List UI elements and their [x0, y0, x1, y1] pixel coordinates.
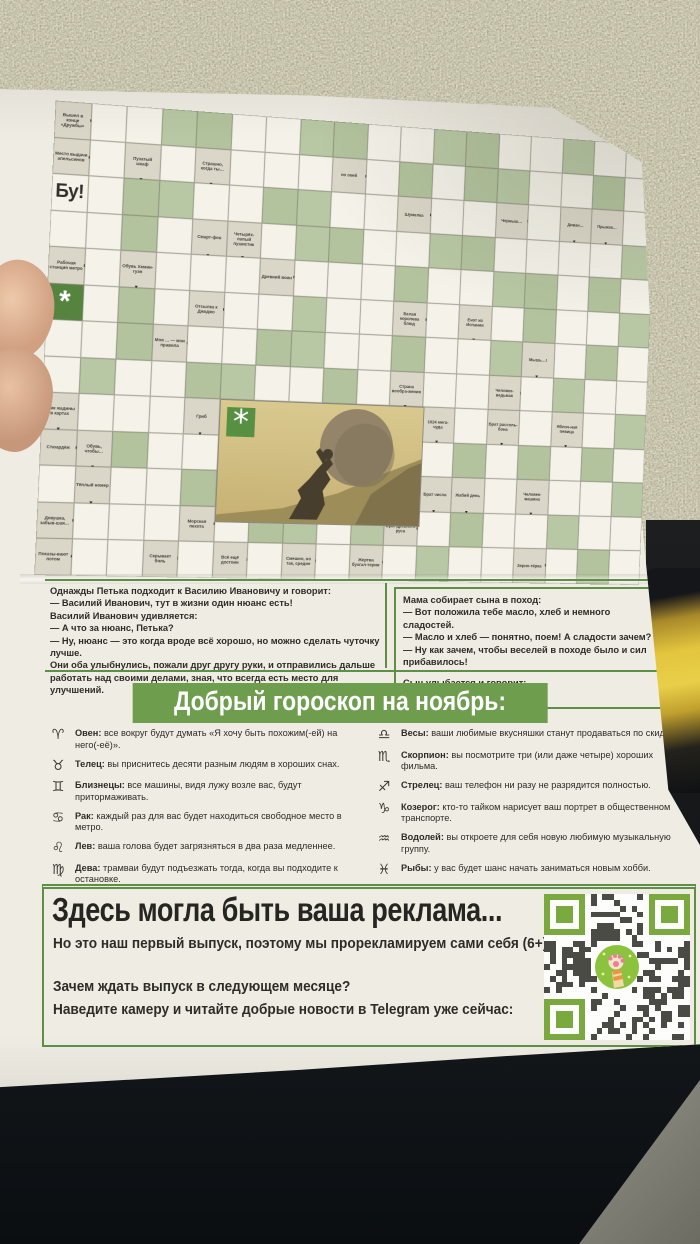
- crossword-cell: [155, 252, 192, 290]
- crossword-cell: [182, 433, 218, 470]
- crossword-cell: [158, 180, 195, 218]
- crossword-cell: [482, 513, 516, 548]
- crossword-clue-cell: Мышь…!▾: [521, 342, 554, 378]
- horoscope-text: Овен: все вокруг будут думать «Я хочу бы…: [75, 728, 356, 751]
- crossword-cell: [465, 131, 499, 168]
- crossword-clue-cell: Смарт-фон▾: [191, 218, 227, 256]
- zodiac-icon: ♊: [48, 780, 68, 794]
- crossword-cell: [428, 233, 462, 270]
- crossword-cell: [265, 116, 301, 154]
- crossword-cell: [562, 139, 595, 175]
- crossword-cell: [529, 170, 562, 206]
- crossword-cell: [79, 357, 116, 395]
- horoscope-text: Скорпион: вы посмотрите три (или даже че…: [401, 750, 682, 773]
- crossword-cell: [224, 256, 260, 293]
- joke-line: Мама собирает сына в поход:: [403, 594, 655, 606]
- crossword-cell: [546, 515, 579, 550]
- crossword-cell: [514, 514, 547, 549]
- horoscope-entry: ♓Рыбы: у вас будет шанс начать заниматьс…: [374, 863, 682, 877]
- crossword-clue-cell: Яблоч-ная певица▾: [550, 412, 583, 447]
- zodiac-icon: ♓: [374, 863, 394, 877]
- crossword-cell: [558, 241, 591, 277]
- crossword-cell: [530, 136, 563, 172]
- crossword-cell: [126, 106, 163, 145]
- crossword-cell: [430, 198, 464, 235]
- crossword-cell: [257, 294, 293, 331]
- crossword-cell: [431, 164, 465, 201]
- crossword-clue-cell: Отсылка к Джоджо▸: [188, 290, 224, 327]
- crossword-cell: [419, 442, 453, 478]
- horoscope-text: Рак: каждый раз для вас будет находиться…: [75, 811, 356, 834]
- cat-paw-icon: [594, 944, 640, 990]
- horoscope-entry: ♋Рак: каждый раз для вас будет находитьс…: [48, 811, 356, 834]
- crossword-cell: [88, 139, 125, 178]
- crossword-cell: [609, 516, 642, 551]
- horoscope-entry: ♎Весы: ваши любимые вкусняшки станут про…: [374, 728, 682, 742]
- crossword-cell: [523, 308, 556, 344]
- horoscope-entry: ♍Дева: трамваи будут подъезжать тогда, к…: [48, 863, 356, 886]
- crossword-cell: [87, 176, 124, 214]
- crossword-cell: [433, 129, 467, 166]
- crossword-cell: [555, 309, 588, 345]
- crossword-clue-cell: Морская пехота▸: [178, 505, 214, 542]
- crossword-cell: [395, 231, 429, 268]
- crossword-clue-cell: Страшно, когда ты…▾: [194, 147, 230, 185]
- ad-line-2: Зачем ждать выпуск в следующем месяце?: [53, 979, 350, 995]
- crossword-clue-cell: Скрывает боль▸: [142, 540, 179, 577]
- crossword-clue-cell: Обувь Хемин-гуэя▾: [119, 250, 156, 288]
- zodiac-icon: ♑: [374, 802, 394, 816]
- zodiac-icon: ♒: [374, 832, 394, 846]
- crossword-clue-cell: Вышел в конце «Дружбы»▸: [54, 101, 92, 140]
- crossword-cell: [618, 313, 651, 348]
- crossword-cell: [356, 369, 391, 405]
- crossword-cell: [616, 346, 649, 381]
- horoscope-entry: ♉Телец: вы приснитесь десяти разным людя…: [48, 759, 356, 773]
- horoscope-text: Близнецы: все машины, видя лужу возле ва…: [75, 780, 356, 803]
- zodiac-icon: ♏: [374, 750, 394, 764]
- crossword-cell: [526, 239, 559, 275]
- zodiac-icon: ♉: [48, 759, 68, 773]
- crossword-cell: [229, 149, 265, 187]
- crossword-cell: [424, 337, 458, 373]
- crossword-cell: [260, 223, 296, 260]
- crossword-grid: Вышел в конце «Дружбы»▸Место выдачи апел…: [34, 101, 657, 585]
- crossword-cell: [295, 225, 330, 262]
- zodiac-icon: ♐: [374, 780, 394, 794]
- crossword-clue-cell: Жабий день▾: [451, 477, 485, 513]
- crossword-clue-cell: Человек-ведьмак▸: [488, 375, 522, 411]
- crossword-cell: [496, 168, 530, 205]
- crossword-cell: [517, 445, 550, 480]
- crossword-cell: [367, 124, 402, 161]
- crossword-cell: [364, 194, 399, 231]
- crossword-cell: [491, 306, 525, 342]
- crossword-cell: [524, 273, 557, 309]
- crossword-cell: [153, 288, 190, 326]
- horoscope-entry: ♈Овен: все вокруг будут думать «Я хочу б…: [48, 728, 356, 751]
- ad-line-3: Наведите камеру и читайте добрые новости…: [53, 1002, 513, 1018]
- asterisk-icon: *: [232, 402, 250, 441]
- crossword-cell: [452, 443, 486, 479]
- crossword-clue-cell: Место выдачи апельсинов▸: [52, 137, 90, 176]
- bu-cell: Бу!: [51, 173, 89, 212]
- crossword-cell: [186, 326, 222, 363]
- crossword-cell: [357, 334, 392, 371]
- crossword-clue-cell: Страна вообра-жения▾: [389, 371, 424, 407]
- crossword-cell: [449, 512, 483, 547]
- horoscope-text: Телец: вы приснитесь десяти разным людям…: [75, 759, 339, 771]
- crossword-cell: [254, 365, 290, 402]
- crossword-cell: [362, 229, 397, 266]
- crossword-cell: [180, 469, 216, 506]
- crossword-cell: [256, 329, 292, 366]
- crossword-clue-cell: но окей▸: [331, 157, 366, 194]
- crossword-cell: [290, 331, 325, 368]
- crossword-section: Вышел в конце «Дружбы»▸Место выдачи апел…: [34, 101, 657, 585]
- crossword-cell: [592, 175, 625, 211]
- crossword-cell: [122, 178, 159, 216]
- crossword-cell: [359, 299, 394, 336]
- crossword-clue-cell: Древний воин▸: [259, 258, 295, 295]
- crossword-cell: [360, 264, 395, 301]
- crossword-cell: [90, 103, 127, 142]
- crossword-cell: [425, 302, 459, 338]
- crossword-cell: [114, 359, 151, 397]
- ad-section: Здесь могла быть ваша реклама... Но это …: [42, 884, 696, 1047]
- crossword-cell: [161, 109, 198, 147]
- crossword-cell: [579, 481, 612, 516]
- crossword-clue-cell: Пузатый шкаф▾: [124, 142, 161, 180]
- crossword-cell: [588, 277, 621, 313]
- crossword-cell: [193, 183, 229, 221]
- crossword-cell: [454, 408, 488, 444]
- crossword-cell: [299, 119, 334, 157]
- crossword-cell: [613, 414, 646, 449]
- crossword-cell: [457, 339, 491, 375]
- crossword-cell: [293, 260, 328, 297]
- horoscope-right-column: ♎Весы: ваши любимые вкусняшки станут про…: [374, 728, 682, 886]
- crossword-cell: [221, 328, 257, 365]
- crossword-cell: [111, 431, 148, 468]
- crossword-cell: [291, 295, 326, 332]
- crossword-cell: [328, 227, 363, 264]
- crossword-cell: [262, 187, 298, 225]
- crossword-cell: [615, 380, 648, 415]
- crossword-cell: [489, 340, 523, 376]
- crossword-cell: [327, 262, 362, 299]
- crossword-cell: [147, 432, 184, 469]
- crossword-cell: [547, 480, 580, 515]
- crossword-cell: [298, 154, 333, 192]
- crossword-cell: [553, 343, 586, 379]
- horoscope-text: Дева: трамваи будут подъезжать тогда, ко…: [75, 863, 356, 886]
- horoscope-text: Стрелец: ваш телефон ни разу не разрядит…: [401, 780, 651, 792]
- crossword-cell: [185, 362, 221, 399]
- qr-module: [684, 1034, 690, 1040]
- crossword-cell: [322, 368, 357, 405]
- crossword-cell: [493, 237, 527, 273]
- crossword-cell: [589, 243, 622, 279]
- joke-line: Однажды Петька подходит к Василию Иванов…: [50, 585, 380, 597]
- crossword-cell: [113, 395, 150, 432]
- joke-line: — Ну, нюанс — это когда вроде всё хорошо…: [50, 635, 380, 660]
- crossword-clue-cell: Девушка, забыв-шая…▸: [36, 501, 74, 538]
- crossword-cell: [391, 336, 426, 372]
- crossword-cell: [223, 292, 259, 329]
- crossword-cell: [578, 515, 611, 550]
- horoscope-entry: ♊Близнецы: все машины, видя лужу возле в…: [48, 780, 356, 803]
- finger-knuckle: [0, 257, 58, 363]
- crossword-cell: [143, 504, 180, 541]
- crossword-cell: [427, 268, 461, 304]
- zodiac-icon: ♍: [48, 863, 68, 877]
- horoscope-text: Козерог: кто-то тайком нарисует ваш порт…: [401, 802, 682, 825]
- crossword-cell: [416, 511, 450, 547]
- horoscope-text: Весы: ваши любимые вкусняшки станут прод…: [401, 728, 677, 740]
- crossword-cell: [109, 467, 146, 504]
- ad-title: Здесь могла быть ваша реклама...: [52, 891, 502, 929]
- crossword-cell: [585, 345, 618, 380]
- horoscope-entry: ♐Стрелец: ваш телефон ни разу не разряди…: [374, 780, 682, 794]
- crossword-cell: [228, 185, 264, 223]
- crossword-cell: [106, 540, 143, 577]
- crossword-cell: [330, 192, 365, 229]
- crossword-clue-cell: Енот из Испании▾: [458, 304, 492, 340]
- joke-line: — Василий Иванович, тут в жизни один нюа…: [50, 597, 380, 609]
- crossword-cell: [85, 212, 122, 250]
- crossword-cell: [455, 373, 489, 409]
- crossword-cell: [333, 121, 368, 158]
- crossword-cell: [611, 482, 644, 517]
- horoscope-left-column: ♈Овен: все вокруг будут думать «Я хочу б…: [48, 728, 356, 886]
- crossword-clue-cell: Гриб▾: [183, 398, 219, 435]
- crossword-cell: [148, 396, 185, 433]
- zodiac-icon: ♎: [374, 728, 394, 742]
- crossword-cell: [581, 447, 614, 482]
- divider-rule: [45, 670, 693, 672]
- crossword-clue-cell: Моя … — мои правила▸: [151, 324, 188, 362]
- horoscope-text: Водолей: вы откроете для себя новую люби…: [401, 832, 682, 855]
- crossword-clue-cell: Четырёх-лапый пушистик▾: [226, 221, 262, 259]
- crossword-cell: [483, 478, 517, 513]
- crossword-cell: [288, 366, 323, 403]
- crossword-clue-cell: 1024 мега-чуда▾: [421, 407, 455, 443]
- crossword-cell: [82, 284, 119, 322]
- crossword-cell: [80, 321, 117, 359]
- sisyphus-image: *: [215, 399, 425, 527]
- joke-line: — Вот положила тебе масло, хлеб и немног…: [403, 606, 655, 631]
- zodiac-icon: ♌: [48, 841, 68, 855]
- joke-line: — Масло и хлеб — понятно, поем! А сладос…: [403, 631, 655, 643]
- crossword-cell: [108, 503, 145, 540]
- crossword-cell: [527, 205, 560, 241]
- horoscope-entry: ♑Козерог: кто-то тайком нарисует ваш пор…: [374, 802, 682, 825]
- crossword-clue-cell: Показы-вают потом▸: [34, 538, 72, 575]
- crossword-cell: [231, 114, 267, 152]
- joke-column-divider: [385, 583, 387, 668]
- crossword-clue-cell: Брат числа▾: [418, 476, 452, 512]
- horoscope-entry: ♌Лев: ваша голова будет загрязняться в д…: [48, 841, 356, 855]
- crossword-cell: [145, 468, 182, 505]
- horoscope-text: Лев: ваша голова будет загрязняться в дв…: [75, 841, 335, 853]
- joke-line: — Ну как зачем, чтобы веселей в походе б…: [403, 644, 655, 669]
- crossword-cell: [398, 161, 432, 198]
- crossword-cell: [422, 372, 456, 408]
- crossword-cell: [552, 378, 585, 413]
- crossword-cell: [220, 363, 256, 400]
- crossword-cell: [492, 271, 526, 307]
- crossword-clue-cell: Обувь, чтобы…▾: [75, 430, 112, 467]
- crossword-clue-cell: Тёплый номер▾: [74, 466, 111, 503]
- finger-tip: [0, 345, 57, 455]
- crossword-clue-cell: Диван…▾: [559, 207, 592, 243]
- horoscope-title: Добрый гороскоп на ноябрь:: [133, 683, 548, 723]
- crossword-cell: [116, 322, 153, 360]
- crossword-cell: [83, 248, 120, 286]
- zodiac-icon: ♋: [48, 811, 68, 825]
- crossword-clue-cell: Белая королева блюд▸: [392, 301, 427, 337]
- divider-rule: [45, 579, 693, 581]
- crossword-cell: [461, 235, 495, 271]
- horoscope-entry: ♏Скорпион: вы посмотрите три (или даже ч…: [374, 750, 682, 773]
- crossword-cell: [460, 270, 494, 306]
- crossword-cell: [583, 379, 616, 414]
- crossword-cell: [560, 173, 593, 209]
- horoscope-title-text: Добрый гороскоп на ноябрь:: [174, 686, 506, 717]
- crossword-cell: [520, 376, 553, 412]
- crossword-cell: [498, 134, 532, 171]
- crossword-cell: [365, 159, 400, 196]
- qr-code: [544, 894, 690, 1040]
- crossword-cell: [72, 502, 109, 539]
- crossword-cell: [190, 254, 226, 292]
- crossword-cell: [582, 413, 615, 448]
- horoscope-text: Рыбы: у вас будет шанс начать заниматься…: [401, 863, 651, 875]
- crossword-clue-cell: Всё ещё достоин▸: [212, 542, 248, 578]
- crossword-clue-cell: Прыжок…▾: [591, 209, 624, 245]
- crossword-cell: [196, 111, 232, 149]
- crossword-cell: [159, 144, 196, 182]
- crossword-cell: [556, 275, 589, 311]
- horoscope-entry: ♒Водолей: вы откроете для себя новую люб…: [374, 832, 682, 855]
- crossword-cell: [612, 448, 645, 483]
- joke-line: — А что за нюанс, Петька?: [50, 622, 380, 634]
- crossword-cell: [586, 311, 619, 347]
- crossword-clue-cell: Шумелка▸: [397, 196, 431, 233]
- joke-line: Василий Иванович удивляется:: [50, 610, 380, 622]
- crossword-cell: [49, 210, 87, 248]
- crossword-clue-cell: Брат рассоль-бона▾: [486, 409, 520, 445]
- crossword-clue-cell: Человек-машина▾: [515, 479, 548, 514]
- crossword-cell: [462, 200, 496, 237]
- ad-line-1: Но это наш первый выпуск, поэтому мы про…: [53, 936, 552, 952]
- crossword-cell: [296, 189, 331, 226]
- crossword-cell: [518, 411, 551, 446]
- crossword-clue-cell: Черныш…▸: [495, 203, 529, 239]
- joke-left: Однажды Петька подходит к Василию Иванов…: [50, 585, 380, 697]
- crossword-cell: [118, 286, 155, 324]
- crossword-cell: [549, 446, 582, 481]
- crossword-cell: [156, 216, 193, 254]
- crossword-cell: [38, 465, 76, 502]
- crossword-cell: [394, 266, 429, 303]
- horoscope-section: ♈Овен: все вокруг будут думать «Я хочу б…: [48, 728, 684, 886]
- crossword-cell: [150, 360, 187, 397]
- crossword-cell: [464, 166, 498, 203]
- crossword-cell: [121, 214, 158, 252]
- crossword-cell: [400, 126, 434, 163]
- crossword-cell: [619, 279, 652, 315]
- crossword-cell: [485, 444, 519, 479]
- crossword-cell: [324, 332, 359, 369]
- newspaper-page: Вышел в конце «Дружбы»▸Место выдачи апел…: [0, 78, 700, 1108]
- crossword-cell: [177, 541, 213, 577]
- crossword-cell: [325, 297, 360, 334]
- crossword-cell: [77, 393, 114, 431]
- crossword-cell: [70, 539, 107, 576]
- zodiac-icon: ♈: [48, 728, 68, 742]
- crossword-cell: [264, 152, 300, 190]
